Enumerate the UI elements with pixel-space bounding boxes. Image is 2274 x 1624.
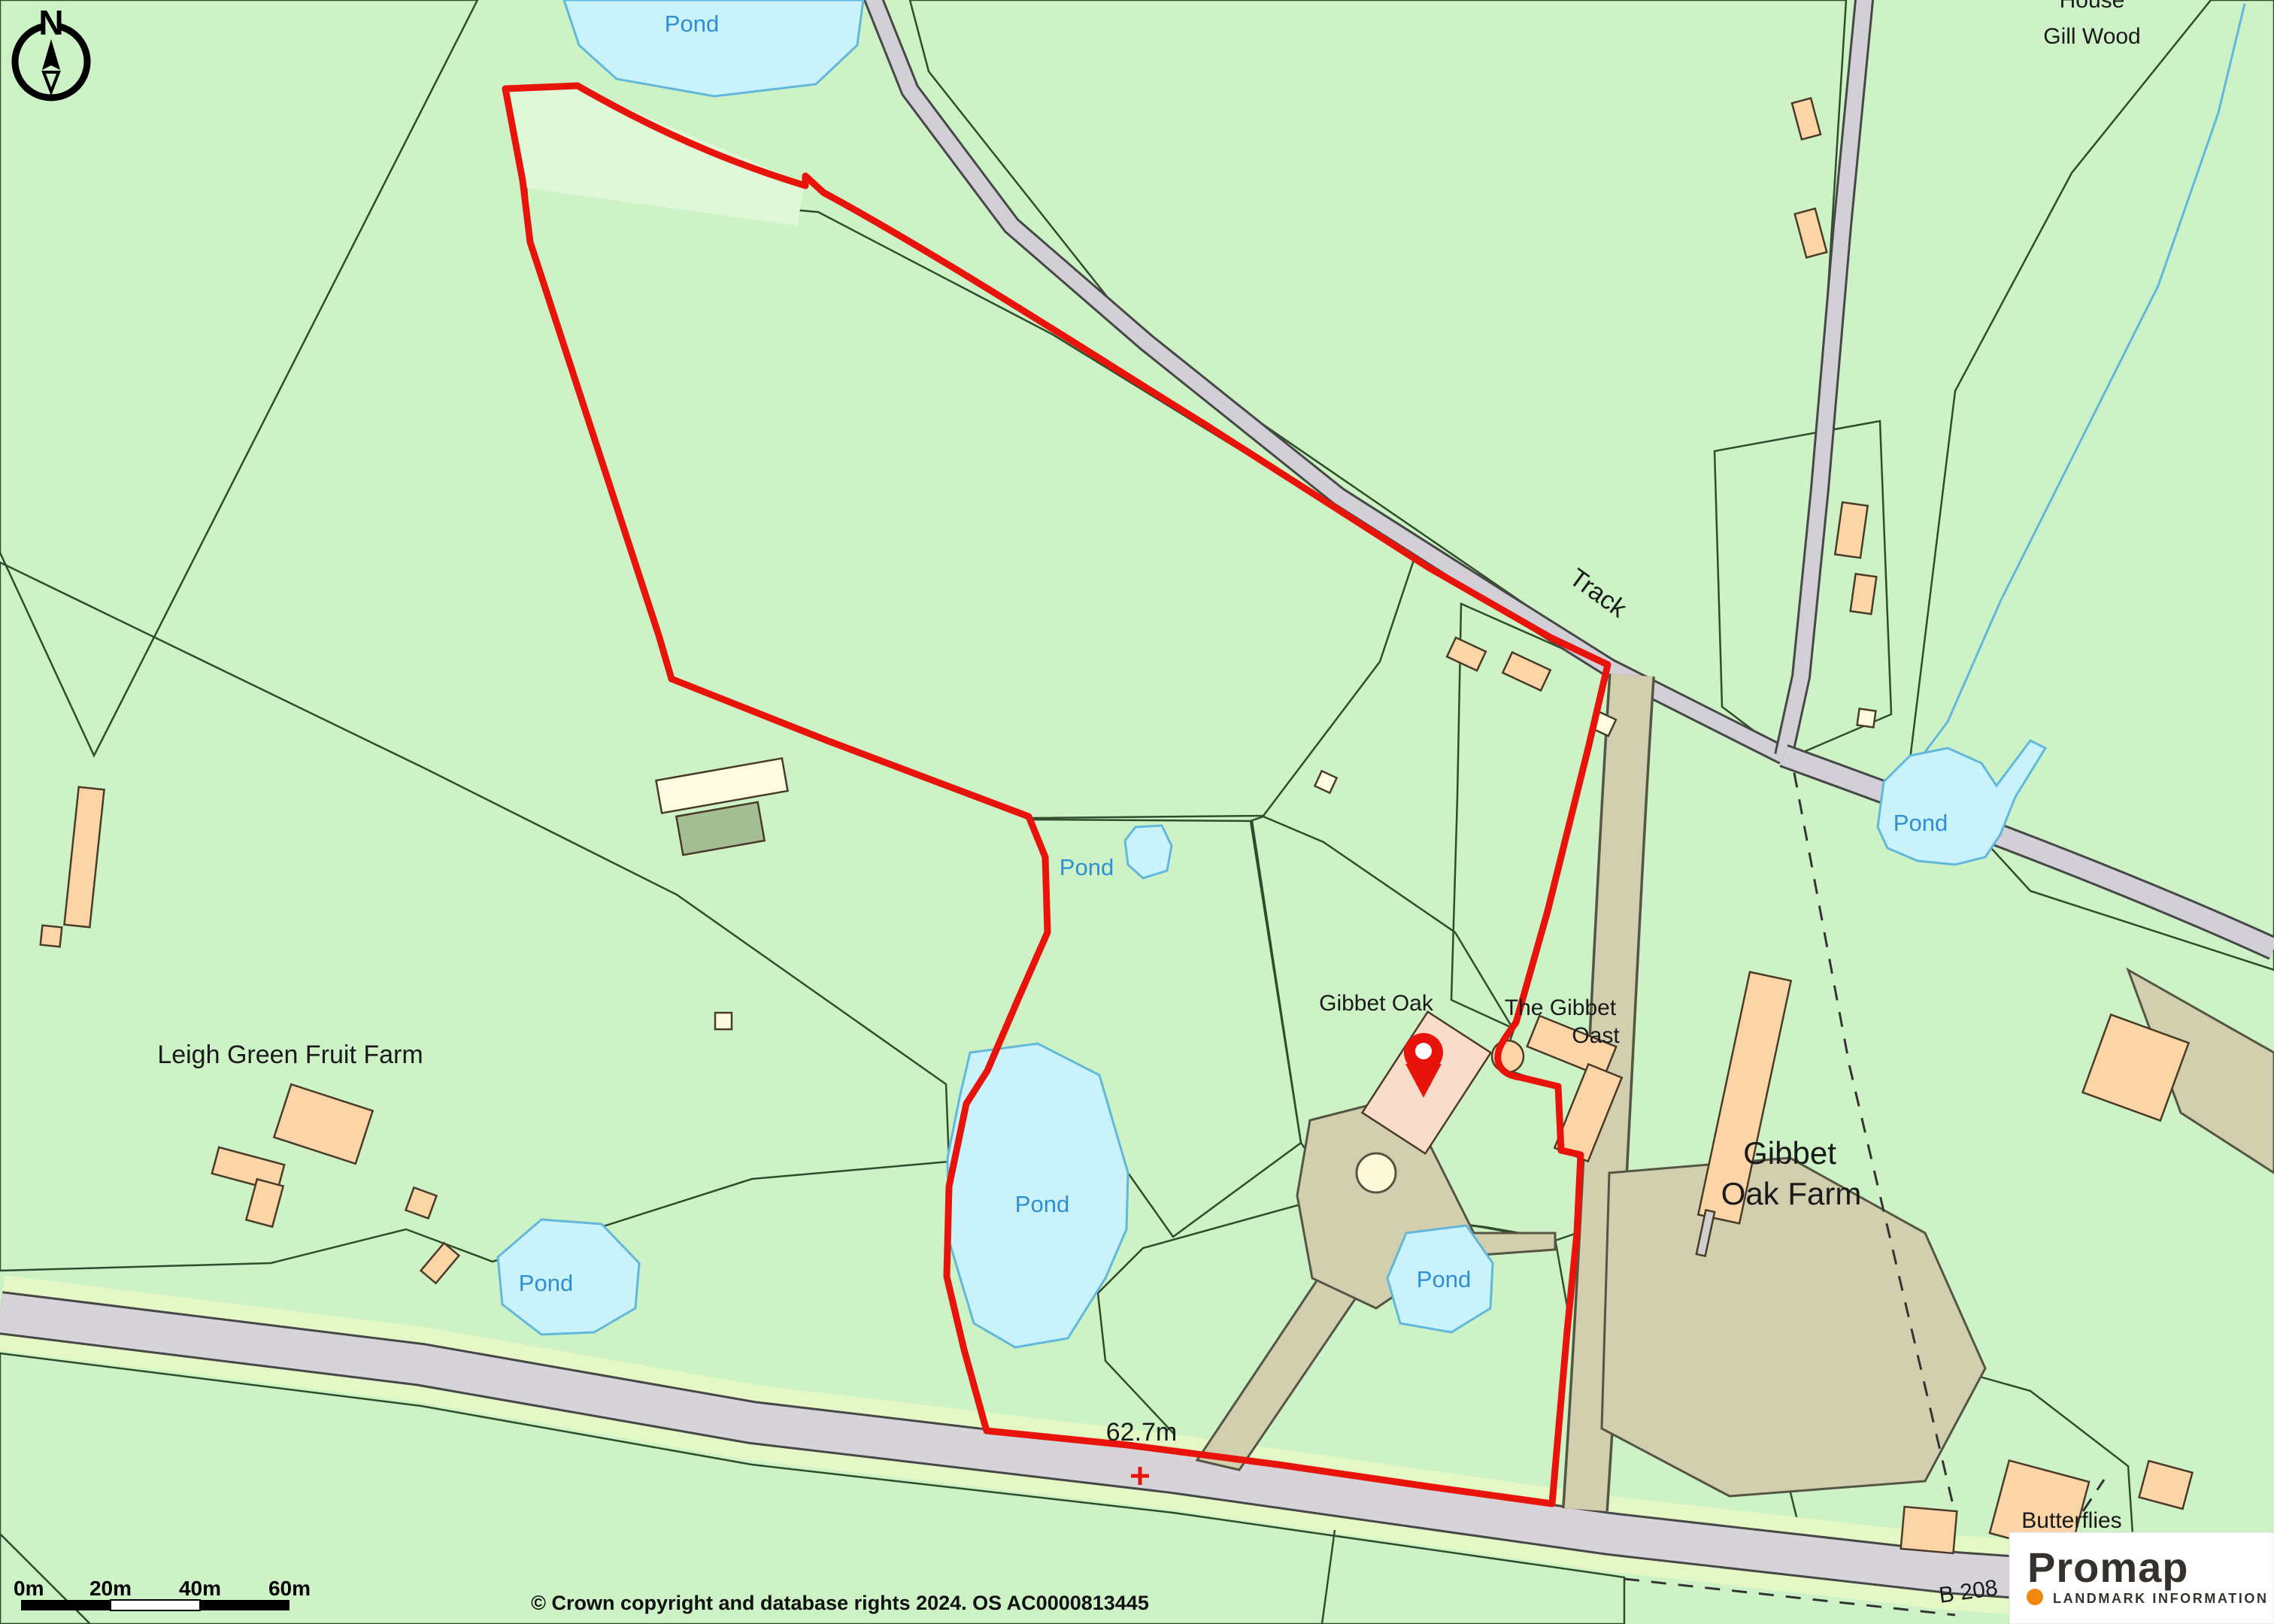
label-butterflies: Butterflies: [2021, 1508, 2121, 1533]
scale-segment-3: [200, 1600, 290, 1610]
promap-map-view: House Gill Wood Track Leigh Green Fruit …: [0, 0, 2274, 1624]
map-canvas[interactable]: House Gill Wood Track Leigh Green Fruit …: [0, 0, 2274, 1624]
scale-tick-0: 0m: [14, 1577, 44, 1600]
scale-tick-40: 40m: [179, 1577, 221, 1600]
building-small-square-1: [715, 1013, 732, 1029]
building-track-east-2: [1851, 574, 1877, 614]
label-gill-wood: Gill Wood: [2043, 24, 2141, 49]
label-leigh-green-fruit-farm: Leigh Green Fruit Farm: [157, 1041, 423, 1069]
label-pond-big: Pond: [1015, 1191, 1069, 1217]
label-pond-left: Pond: [519, 1270, 573, 1296]
label-gibbet-oak: Gibbet Oak: [1319, 991, 1434, 1016]
label-the-gibbet: The Gibbet: [1505, 995, 1617, 1020]
label-gibbet: Gibbet: [1743, 1135, 1836, 1171]
building-small-square-4: [1857, 709, 1876, 728]
building-left-edge-small: [41, 926, 62, 947]
logo-orange-dot-icon: [2027, 1589, 2043, 1605]
yard-island: [1357, 1153, 1396, 1192]
compass-north-letter: N: [38, 3, 63, 42]
logo-tagline: LANDMARK INFORMATION: [2053, 1591, 2269, 1606]
logo-brand: Promap: [2027, 1544, 2189, 1591]
building-farmyard: [1901, 1507, 1957, 1553]
label-house: House: [2060, 0, 2125, 13]
label-spot-height: 62.7m: [1106, 1418, 1178, 1447]
promap-logo: Promap LANDMARK INFORMATION: [2009, 1532, 2274, 1624]
label-pond-top: Pond: [665, 11, 719, 37]
scale-segment-1: [21, 1600, 111, 1610]
scale-tick-60: 60m: [268, 1577, 311, 1600]
label-pond-middle: Pond: [1060, 854, 1114, 880]
copyright-attribution: © Crown copyright and database rights 20…: [531, 1592, 1149, 1614]
scale-segment-2: [111, 1600, 200, 1610]
label-pond-right: Pond: [1893, 810, 1948, 836]
location-pin-hole: [1415, 1043, 1432, 1059]
label-pond-right-center: Pond: [1417, 1266, 1471, 1292]
label-oast: Oast: [1572, 1023, 1620, 1048]
scale-tick-20: 20m: [89, 1577, 132, 1600]
label-oak-farm: Oak Farm: [1721, 1176, 1862, 1211]
